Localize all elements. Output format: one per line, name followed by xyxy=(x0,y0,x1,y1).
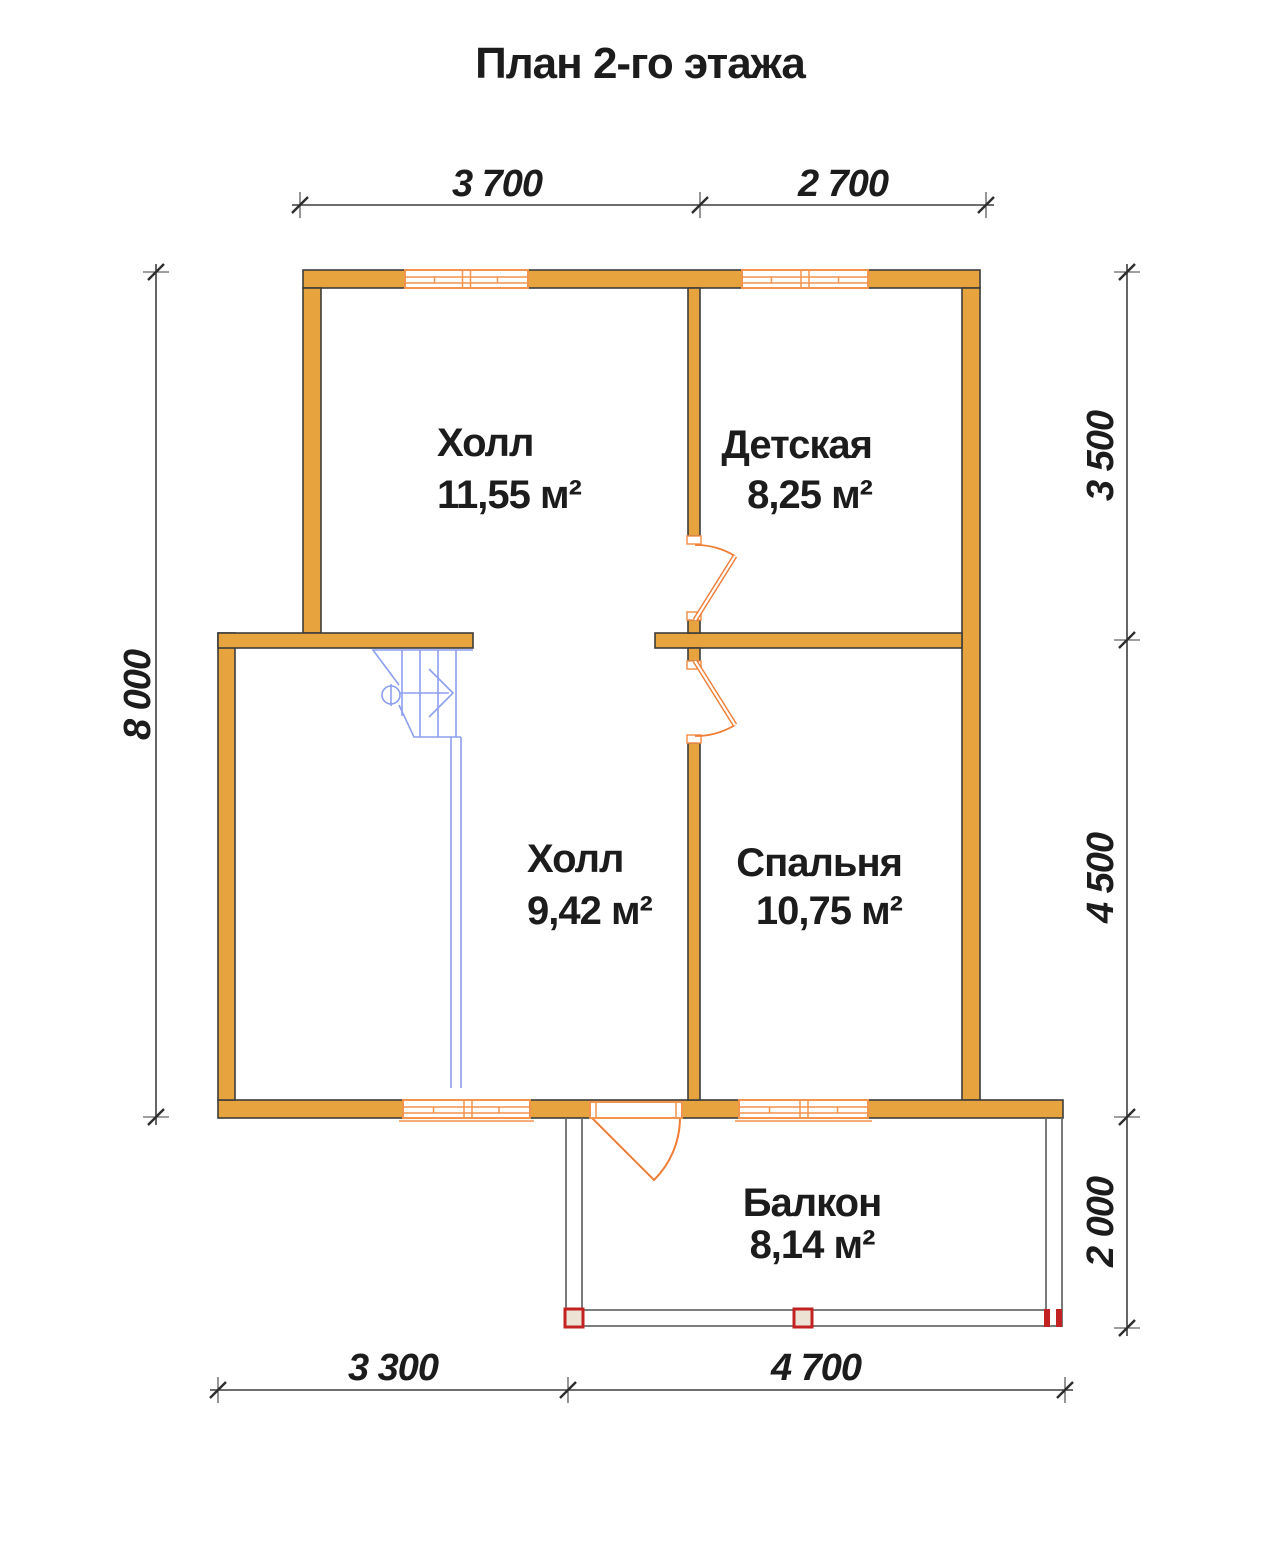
window-hall-upper xyxy=(405,270,528,288)
room-label-nursery: Детская 8,25 м² xyxy=(721,423,872,517)
balcony-post-right-a xyxy=(1044,1309,1050,1327)
stairs xyxy=(373,650,473,1088)
dimension-top-left-label: 3 700 xyxy=(452,163,543,205)
balcony-post-middle xyxy=(794,1309,812,1327)
wall-left-lower xyxy=(218,633,235,1100)
door-balcony xyxy=(590,1102,682,1180)
plan-title: План 2-го этажа xyxy=(475,39,806,88)
dimension-bottom-left-label: 3 300 xyxy=(348,1347,439,1389)
room-label-hall-upper: Холл 11,55 м² xyxy=(437,421,582,517)
window-nursery xyxy=(742,270,868,288)
window-hall-lower xyxy=(399,1100,534,1121)
balcony-post-left xyxy=(565,1309,583,1327)
stair-direction-arrow xyxy=(399,669,453,717)
room-name: Холл xyxy=(527,837,623,881)
room-name: Спальня xyxy=(736,841,902,885)
walls xyxy=(218,270,1063,1118)
dimension-right-upper-label: 3 500 xyxy=(1080,410,1122,501)
room-name: Детская xyxy=(721,423,872,467)
window-bedroom xyxy=(735,1100,872,1121)
wall-interior-stub-2 xyxy=(688,648,700,661)
room-label-hall-lower: Холл 9,42 м² xyxy=(527,837,653,933)
wall-right xyxy=(962,288,980,1100)
door-nursery xyxy=(695,545,735,620)
wall-left-upper xyxy=(303,288,321,633)
wall-interior-vertical-upper xyxy=(688,288,700,536)
room-name: Холл xyxy=(437,421,533,465)
dimension-top-right-label: 2 700 xyxy=(797,163,889,205)
room-name: Балкон xyxy=(743,1181,882,1225)
balcony-post-right-b xyxy=(1056,1309,1062,1327)
dimension-bottom-right-label: 4 700 xyxy=(770,1347,862,1389)
dimension-bottom xyxy=(210,1377,1073,1403)
dimension-top xyxy=(292,192,994,218)
stair-rail xyxy=(451,737,461,1088)
room-label-bedroom: Спальня 10,75 м² xyxy=(736,841,902,933)
wall-interior-stub-1 xyxy=(688,620,700,633)
room-area: 10,75 м² xyxy=(756,889,903,933)
room-label-balcony: Балкон 8,14 м² xyxy=(743,1181,882,1267)
dimension-left-label: 8 000 xyxy=(117,649,159,740)
room-area: 8,14 м² xyxy=(750,1223,876,1267)
dimension-right-middle-label: 4 500 xyxy=(1080,832,1122,924)
room-area: 9,42 м² xyxy=(527,889,653,933)
floor-plan-drawing: План 2-го этажа 3 700 2 700 8 000 3 500 … xyxy=(0,0,1280,1546)
floor-plan-page: План 2-го этажа 3 700 2 700 8 000 3 500 … xyxy=(0,0,1280,1546)
wall-middle-right xyxy=(655,633,962,648)
wall-middle-left xyxy=(218,633,473,648)
room-area: 11,55 м² xyxy=(437,473,582,517)
dimension-right-lower-label: 2 000 xyxy=(1080,1176,1122,1268)
door-bedroom xyxy=(695,661,735,736)
wall-interior-vertical-lower xyxy=(688,743,700,1100)
room-area: 8,25 м² xyxy=(747,473,873,517)
